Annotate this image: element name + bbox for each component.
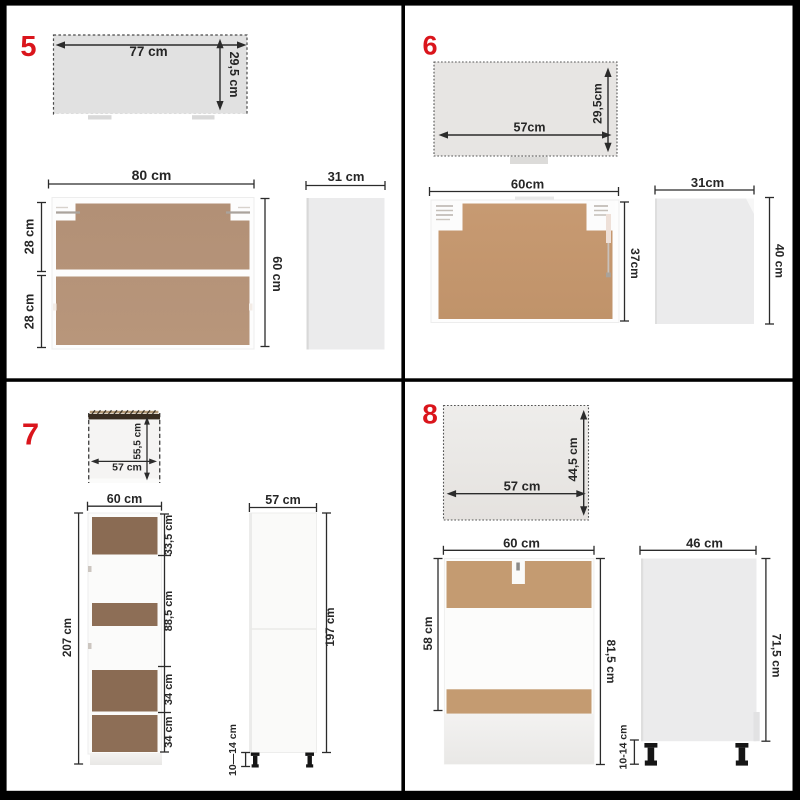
svg-text:57 cm: 57 cm: [504, 479, 541, 494]
svg-text:207 cm: 207 cm: [62, 618, 74, 657]
svg-text:77 cm: 77 cm: [129, 44, 167, 59]
svg-text:57 cm: 57 cm: [265, 493, 300, 507]
svg-text:34 cm: 34 cm: [163, 716, 175, 747]
svg-text:37cm: 37cm: [628, 248, 642, 279]
svg-text:28 cm: 28 cm: [23, 294, 37, 329]
svg-text:197 cm: 197 cm: [325, 607, 337, 646]
svg-text:8: 8: [422, 399, 438, 430]
svg-text:7: 7: [22, 417, 39, 452]
svg-text:60cm: 60cm: [511, 177, 544, 192]
svg-text:80 cm: 80 cm: [132, 167, 172, 183]
svg-text:60 cm: 60 cm: [270, 256, 284, 291]
svg-text:46 cm: 46 cm: [686, 535, 723, 550]
svg-text:34 cm: 34 cm: [163, 674, 175, 705]
svg-text:10—14 cm: 10—14 cm: [227, 724, 239, 776]
svg-text:33,5 cm: 33,5 cm: [163, 515, 175, 556]
svg-text:44,5 cm: 44,5 cm: [566, 437, 580, 481]
svg-text:29,5 cm: 29,5 cm: [227, 52, 241, 98]
svg-text:57cm: 57cm: [514, 121, 546, 135]
svg-text:57 cm: 57 cm: [112, 461, 142, 473]
svg-text:6: 6: [422, 31, 437, 61]
svg-text:60 cm: 60 cm: [107, 492, 142, 506]
svg-text:31cm: 31cm: [691, 175, 724, 190]
svg-text:10-14 cm: 10-14 cm: [618, 725, 630, 770]
svg-text:40 cm: 40 cm: [773, 244, 787, 278]
svg-text:31 cm: 31 cm: [328, 169, 365, 184]
svg-text:88,5 cm: 88,5 cm: [163, 591, 175, 632]
svg-text:58 cm: 58 cm: [421, 616, 435, 650]
svg-text:29,5cm: 29,5cm: [591, 83, 605, 124]
svg-text:81,5 cm: 81,5 cm: [604, 639, 618, 683]
svg-text:60 cm: 60 cm: [503, 535, 540, 550]
svg-text:5: 5: [20, 31, 36, 63]
svg-text:71,5 cm: 71,5 cm: [769, 633, 783, 677]
svg-text:55,5 cm: 55,5 cm: [133, 423, 144, 460]
svg-text:28 cm: 28 cm: [23, 219, 37, 254]
